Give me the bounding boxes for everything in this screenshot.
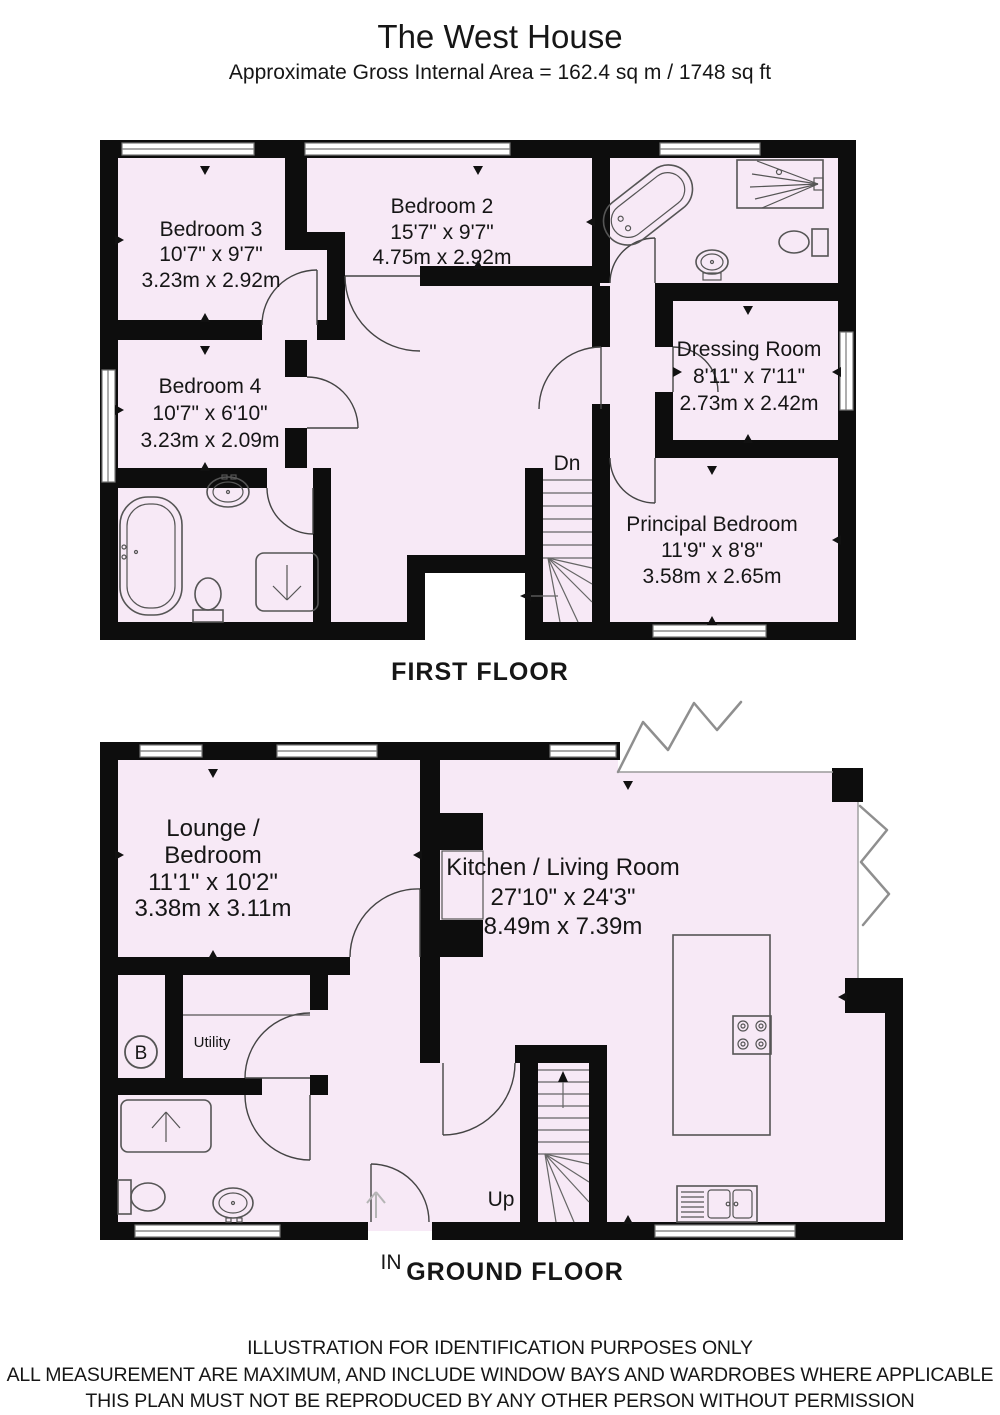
- outside-right: [858, 742, 903, 1013]
- room-label-dressing-room: Dressing Room: [677, 338, 822, 361]
- room-label-lounge-2: Bedroom: [164, 842, 261, 869]
- ground-floor-title: GROUND FLOOR: [406, 1258, 624, 1286]
- window: [655, 1225, 795, 1237]
- room-dims-imperial: 11'9" x 8'8": [661, 539, 763, 562]
- page-subtitle: Approximate Gross Internal Area = 162.4 …: [229, 61, 771, 84]
- first-floor-plan: Bedroom 3 10'7" x 9'7" 3.23m x 2.92m Bed…: [100, 140, 856, 686]
- footer-line-1: ILLUSTRATION FOR IDENTIFICATION PURPOSES…: [247, 1337, 753, 1359]
- entrance-label: IN: [381, 1251, 402, 1274]
- room-label-lounge: Lounge /: [166, 815, 260, 842]
- window: [840, 332, 853, 410]
- room-dims-imperial: 27'10" x 24'3": [491, 884, 636, 911]
- room-dims-imperial: 10'7" x 6'10": [152, 402, 267, 425]
- window: [550, 745, 616, 757]
- ground-floor-plan: B Lounge / Bedroom 11'1" x 10'2" 3.38m x…: [100, 702, 903, 1286]
- room-dims-metric: 3.58m x 2.65m: [643, 565, 782, 588]
- room-label-bedroom2: Bedroom 2: [391, 195, 494, 218]
- footer-line-3: THIS PLAN MUST NOT BE REPRODUCED BY ANY …: [85, 1390, 914, 1412]
- room-label-bedroom4: Bedroom 4: [159, 375, 262, 398]
- stairs-down-label: Dn: [554, 452, 581, 475]
- window: [305, 143, 510, 155]
- window: [102, 370, 115, 482]
- window: [277, 745, 377, 757]
- boiler-label: B: [135, 1043, 148, 1064]
- window: [653, 625, 766, 637]
- room-dims-imperial: 8'11" x 7'11": [693, 365, 805, 388]
- footer-line-2: ALL MEASUREMENT ARE MAXIMUM, AND INCLUDE…: [7, 1364, 994, 1386]
- window: [140, 745, 202, 757]
- room-dims-metric: 3.23m x 2.92m: [142, 269, 281, 292]
- room-dims-imperial: 11'1" x 10'2": [148, 869, 278, 896]
- footer-disclaimer: ILLUSTRATION FOR IDENTIFICATION PURPOSES…: [7, 1337, 994, 1412]
- window: [660, 143, 760, 155]
- room-label-utility: Utility: [194, 1034, 231, 1051]
- room-dims-metric: 2.73m x 2.42m: [680, 392, 819, 415]
- room-dims-metric: 8.49m x 7.39m: [484, 913, 643, 940]
- room-dims-metric: 4.75m x 2.92m: [373, 246, 512, 269]
- room-label-bedroom3: Bedroom 3: [160, 218, 263, 241]
- window: [135, 1225, 280, 1237]
- room-dims-metric: 3.23m x 2.09m: [141, 429, 280, 452]
- room-dims-imperial: 10'7" x 9'7": [159, 243, 263, 266]
- room-dims-metric: 3.38m x 3.11m: [135, 895, 292, 922]
- first-floor-title: FIRST FLOOR: [391, 658, 569, 686]
- room-dims-imperial: 15'7" x 9'7": [390, 221, 494, 244]
- room-label-principal-bedroom: Principal Bedroom: [626, 513, 798, 536]
- page-title: The West House: [377, 18, 622, 55]
- floorplan-canvas: The West House Approximate Gross Interna…: [0, 0, 1000, 1415]
- stairs-up-label: Up: [488, 1188, 515, 1211]
- outside-top: [618, 742, 858, 772]
- recess-notch: [425, 573, 525, 640]
- window: [122, 143, 254, 155]
- room-label-kitchen: Kitchen / Living Room: [446, 854, 679, 881]
